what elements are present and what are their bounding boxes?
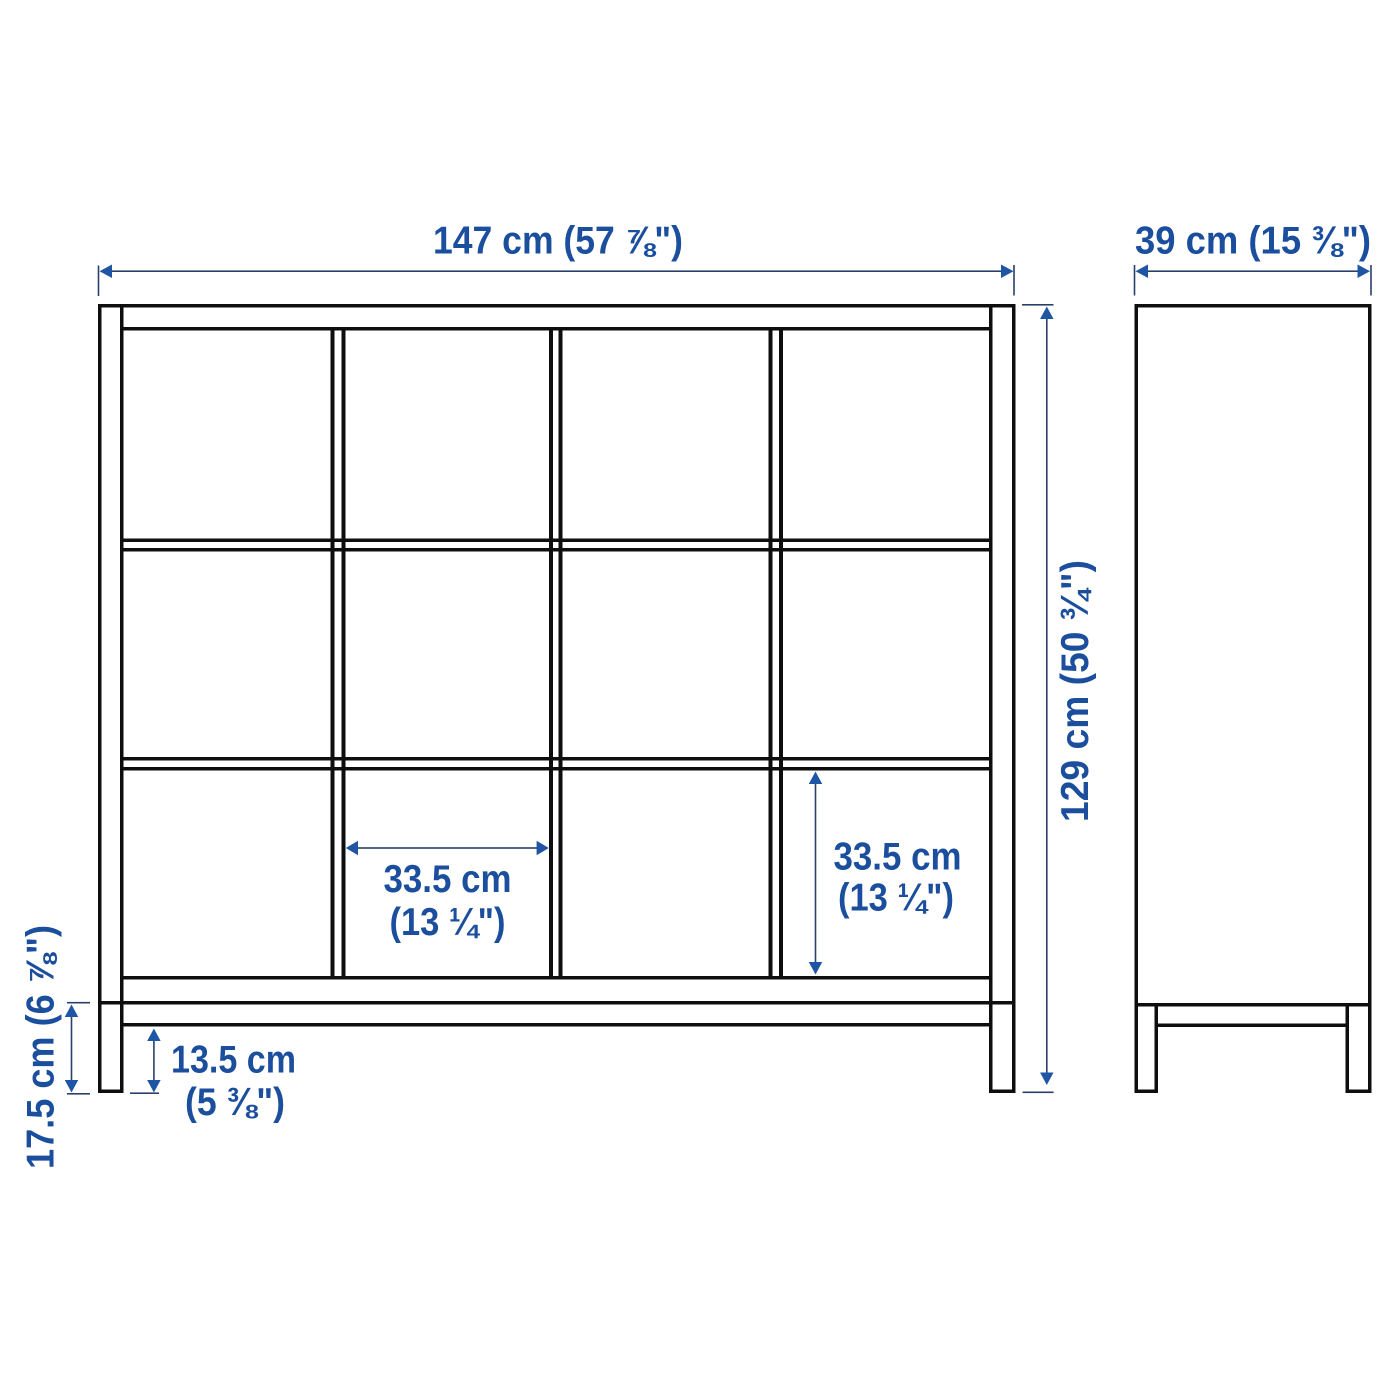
- svg-text:39 cm (15 ⅜"): 39 cm (15 ⅜"): [1135, 220, 1371, 263]
- svg-text:(13 ¼"): (13 ¼"): [390, 901, 506, 944]
- svg-text:33.5 cm: 33.5 cm: [834, 836, 962, 879]
- svg-text:(13 ¼"): (13 ¼"): [838, 877, 954, 920]
- svg-text:147 cm (57 ⅞"): 147 cm (57 ⅞"): [433, 220, 683, 263]
- svg-text:33.5 cm: 33.5 cm: [384, 858, 512, 901]
- svg-text:(5 ⅜"): (5 ⅜"): [185, 1081, 285, 1124]
- svg-text:13.5 cm: 13.5 cm: [171, 1039, 296, 1082]
- svg-text:17.5 cm (6 ⅞"): 17.5 cm (6 ⅞"): [20, 925, 63, 1169]
- svg-text:129 cm (50 ¾"): 129 cm (50 ¾"): [1054, 560, 1097, 822]
